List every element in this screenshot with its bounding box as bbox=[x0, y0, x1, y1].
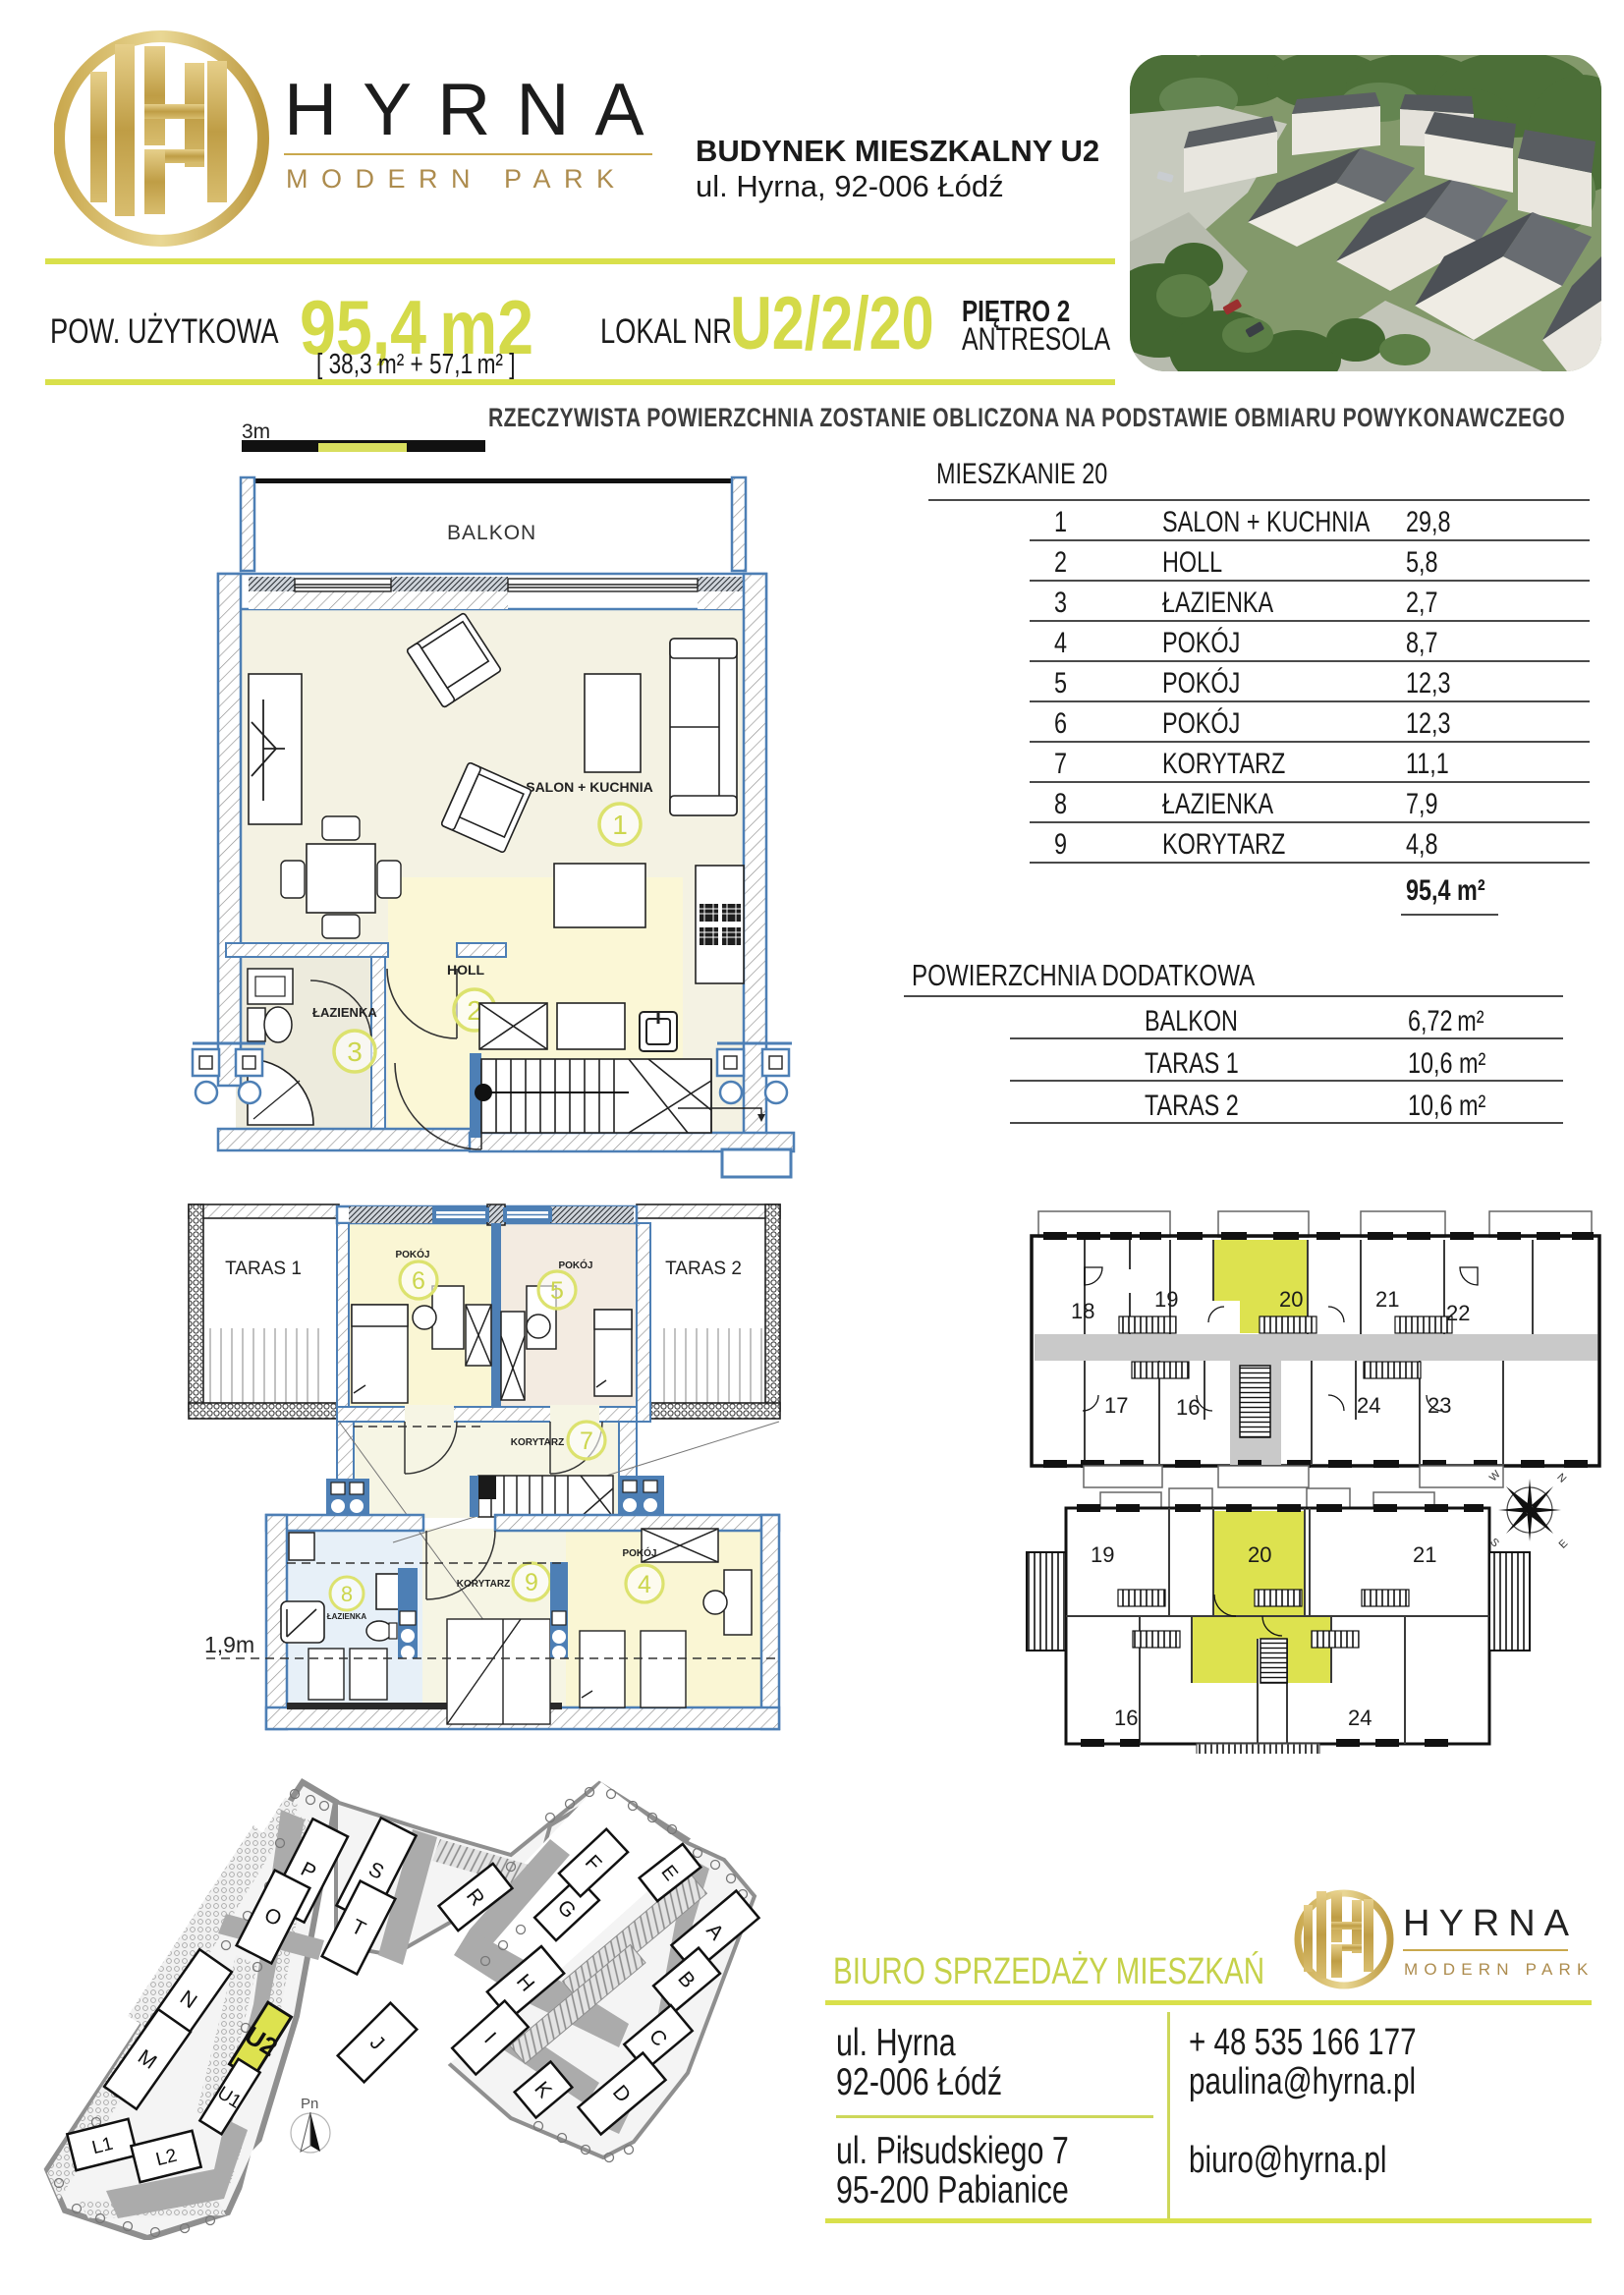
svg-text:POKÓJ: POKÓJ bbox=[622, 1546, 656, 1559]
svg-text:7: 7 bbox=[580, 1427, 593, 1455]
svg-text:KORYTARZ: KORYTARZ bbox=[457, 1579, 510, 1590]
svg-text:16: 16 bbox=[1176, 1395, 1200, 1420]
svg-text:1: 1 bbox=[612, 810, 628, 840]
svg-text:POKÓJ: POKÓJ bbox=[395, 1248, 429, 1260]
svg-text:1,9m: 1,9m bbox=[204, 1632, 254, 1657]
svg-text:5: 5 bbox=[550, 1277, 564, 1305]
svg-text:MODERN PARK: MODERN PARK bbox=[1404, 1960, 1588, 1979]
svg-text:Pn: Pn bbox=[301, 2096, 318, 2112]
svg-text:22: 22 bbox=[1446, 1301, 1470, 1325]
svg-text:SALON + KUCHNIA: SALON + KUCHNIA bbox=[526, 779, 653, 795]
svg-text:8: 8 bbox=[341, 1582, 353, 1606]
svg-text:9: 9 bbox=[525, 1569, 538, 1596]
svg-text:ŁAZIENKA: ŁAZIENKA bbox=[312, 1005, 377, 1020]
svg-text:TARAS 1: TARAS 1 bbox=[225, 1259, 302, 1279]
svg-text:17: 17 bbox=[1104, 1393, 1128, 1418]
svg-text:20: 20 bbox=[1248, 1542, 1271, 1567]
svg-text:18: 18 bbox=[1071, 1299, 1094, 1323]
svg-text:23: 23 bbox=[1428, 1393, 1451, 1418]
svg-text:16: 16 bbox=[1114, 1706, 1138, 1730]
svg-text:HOLL: HOLL bbox=[447, 962, 485, 978]
svg-text:POKÓJ: POKÓJ bbox=[558, 1259, 592, 1271]
svg-text:4: 4 bbox=[638, 1571, 651, 1598]
svg-text:19: 19 bbox=[1091, 1542, 1114, 1567]
svg-text:ŁAZIENKA: ŁAZIENKA bbox=[327, 1612, 367, 1621]
svg-text:21: 21 bbox=[1413, 1542, 1436, 1567]
svg-text:3: 3 bbox=[347, 1036, 363, 1067]
svg-text:21: 21 bbox=[1375, 1287, 1399, 1312]
svg-text:HYRNA: HYRNA bbox=[1403, 1903, 1578, 1944]
svg-text:24: 24 bbox=[1348, 1706, 1372, 1730]
svg-text:N: N bbox=[1554, 1472, 1568, 1485]
svg-text:TARAS 2: TARAS 2 bbox=[665, 1259, 742, 1279]
svg-text:KORYTARZ: KORYTARZ bbox=[511, 1437, 564, 1448]
svg-text:E: E bbox=[1557, 1538, 1571, 1551]
svg-text:20: 20 bbox=[1279, 1287, 1303, 1312]
svg-text:BALKON: BALKON bbox=[447, 522, 536, 544]
svg-text:19: 19 bbox=[1154, 1287, 1178, 1312]
svg-text:24: 24 bbox=[1357, 1393, 1380, 1418]
svg-text:6: 6 bbox=[412, 1267, 425, 1295]
